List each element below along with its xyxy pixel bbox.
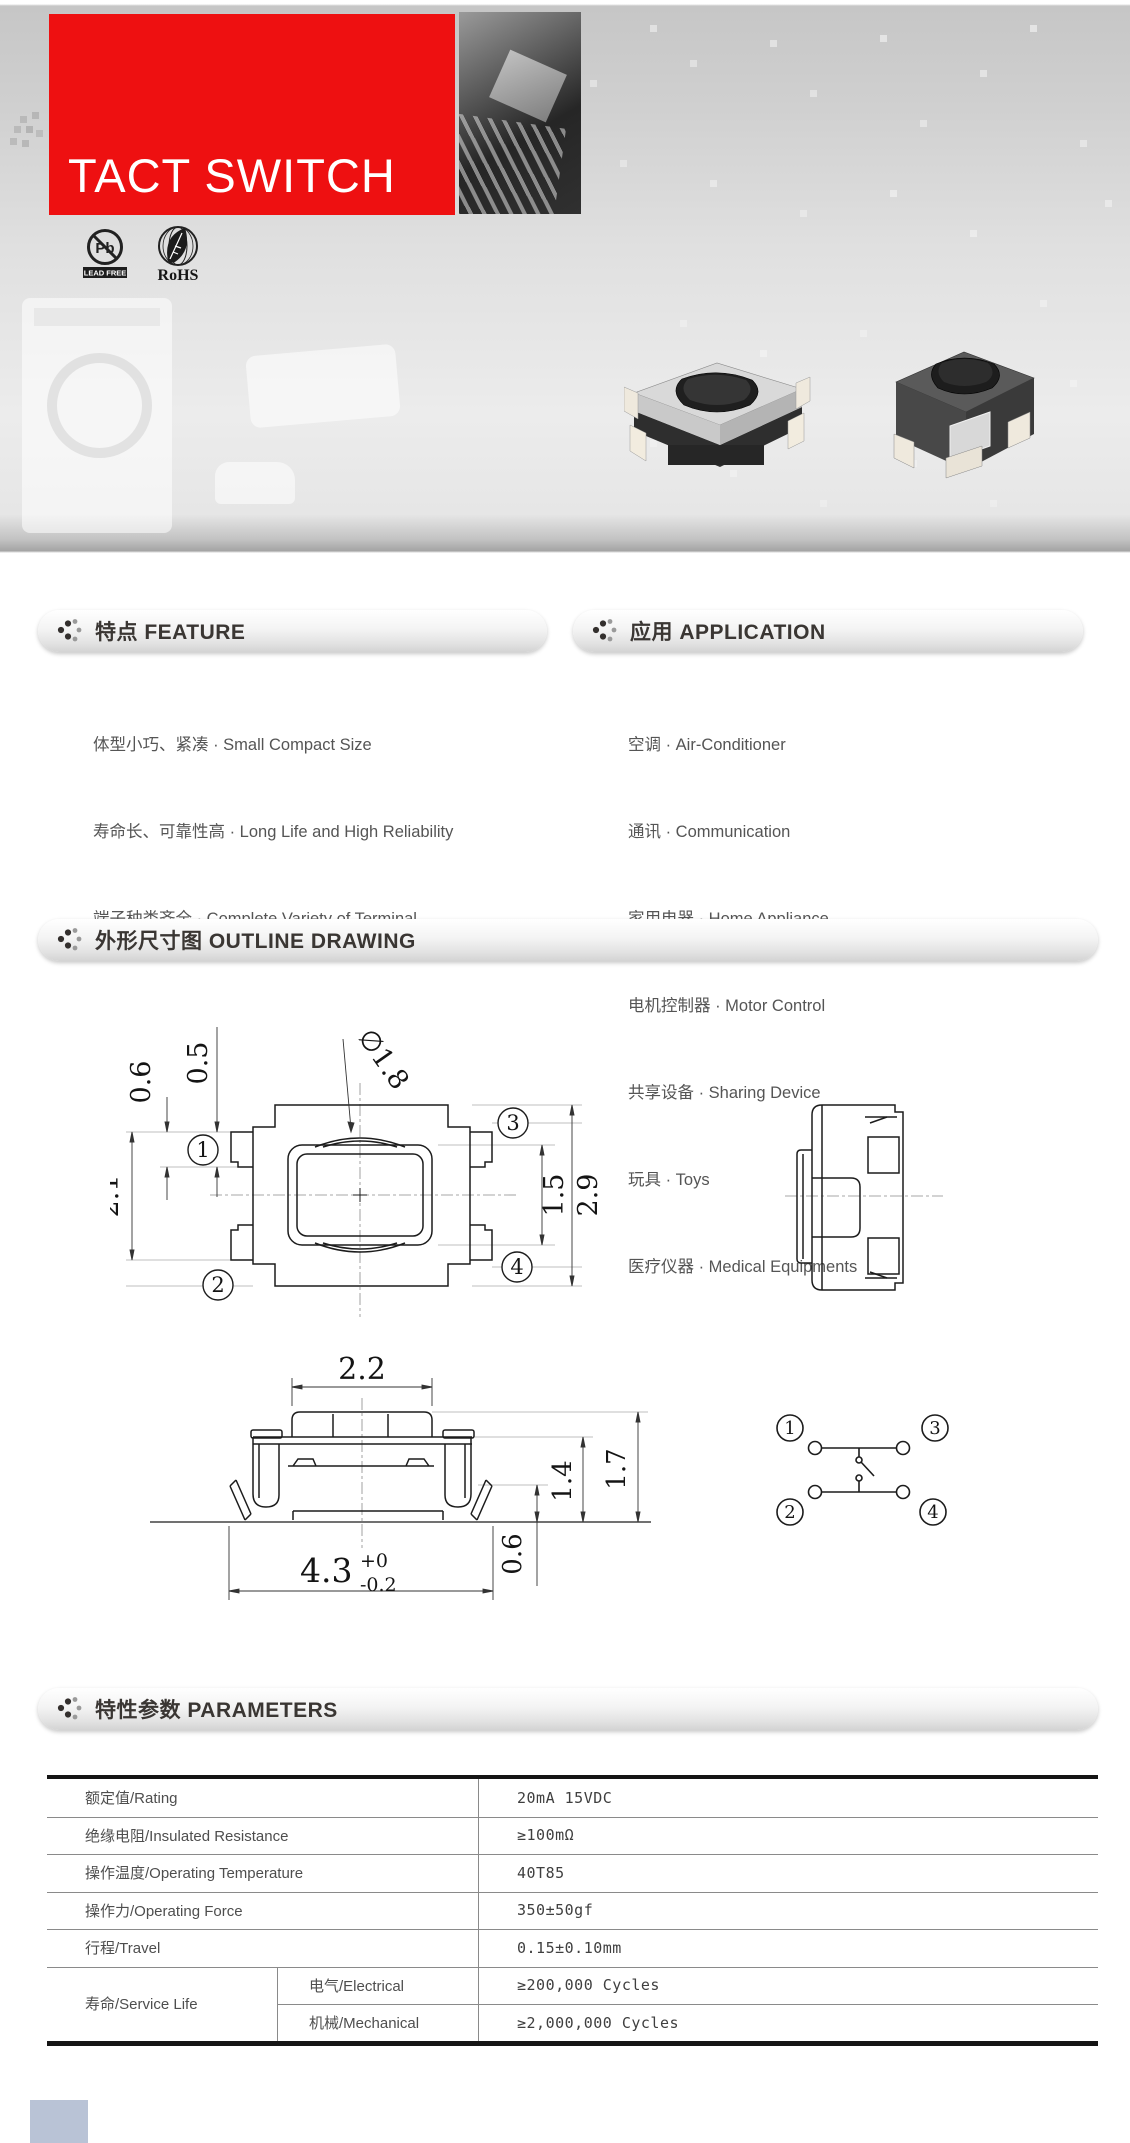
watermark-air-conditioner (245, 344, 401, 429)
rohs-label: RoHS (158, 267, 199, 284)
application-item: 电机控制器 · Motor Control (628, 992, 857, 1021)
param-label: 行程/Travel (85, 1929, 160, 1967)
svg-text:Pb: Pb (95, 240, 114, 257)
application-title: 应用 APPLICATION (630, 616, 826, 646)
param-label: 绝缘电阻/Insulated Resistance (85, 1817, 288, 1855)
param-label: 操作力/Operating Force (85, 1892, 243, 1930)
dim-total-width: 4.3 (300, 1551, 352, 1590)
param-value: 350±50gf (517, 1892, 593, 1930)
watermark-washing-machine (22, 298, 172, 533)
application-header: 应用 APPLICATION (573, 610, 1083, 652)
schematic-pin-2: 2 (784, 1502, 795, 1523)
title-banner: TACT SWITCH (49, 14, 455, 215)
product-photo-right (888, 330, 1041, 489)
hero-section: TACT SWITCH Pb LEAD FREE RoHS (0, 0, 1130, 553)
service-life-sub-value: ≥2,000,000 Cycles (517, 2004, 679, 2042)
schematic-pin-3: 3 (929, 1418, 940, 1439)
dim-button-dia: ∅1.8 (351, 1023, 415, 1095)
page-title: TACT SWITCH (68, 152, 396, 199)
rohs-icon: RoHS (158, 227, 199, 284)
lead-free-icon: Pb LEAD FREE (83, 231, 127, 279)
feature-item: 寿命长、可靠性高 · Long Life and High Reliabilit… (93, 818, 453, 847)
service-life-sub-value: ≥200,000 Cycles (517, 1967, 660, 2005)
product-photo-left (624, 349, 811, 487)
application-item: 通讯 · Communication (628, 818, 857, 847)
mosaic-pattern (560, 0, 567, 7)
param-value: 0.15±0.10mm (517, 1929, 622, 1967)
outline-header: 外形尺寸图 OUTLINE DRAWING (38, 919, 1098, 961)
dim-total-height: 1.7 (602, 1448, 632, 1489)
drawing-side-view (745, 1070, 975, 1310)
dots-icon (591, 619, 617, 643)
dim-body-height: 1.4 (548, 1460, 578, 1501)
drawing-front-view: 2.2 1.4 1.7 0.6 4.3 +0 -0.2 (148, 1348, 708, 1648)
service-life-label: 寿命/Service Life (85, 1967, 198, 2042)
watermark-car (215, 462, 295, 504)
param-value: ≥100mΩ (517, 1817, 574, 1855)
dots-icon (56, 1697, 82, 1721)
drawing-top-view: 0.5 0.6 ∅1.8 2.1 1.5 2.9 1 2 3 4 (110, 985, 610, 1330)
outline-title: 外形尺寸图 OUTLINE DRAWING (95, 925, 416, 955)
pin-callout-2: 2 (211, 1273, 224, 1297)
dim-terminal-height: 0.6 (498, 1533, 528, 1574)
lead-free-label: LEAD FREE (84, 269, 127, 278)
feature-header: 特点 FEATURE (38, 610, 547, 652)
pin-callout-4: 4 (510, 1255, 523, 1279)
datasheet-page: TACT SWITCH Pb LEAD FREE RoHS (0, 0, 1130, 2143)
param-label: 额定值/Rating (85, 1779, 178, 1817)
pin-callout-1: 1 (196, 1138, 209, 1162)
parameters-table: 额定值/Rating 20mA 15VDC 绝缘电阻/Insulated Res… (47, 1775, 1098, 2046)
mosaic-pattern-left (8, 112, 15, 119)
dim-button-width: 2.2 (338, 1352, 386, 1387)
parameters-header: 特性参数 PARAMETERS (38, 1688, 1098, 1730)
application-item: 空调 · Air-Conditioner (628, 731, 857, 760)
schematic-pin-1: 1 (784, 1418, 795, 1439)
param-label: 操作温度/Operating Temperature (85, 1854, 303, 1892)
footer-mark (30, 2100, 88, 2143)
dots-icon (56, 928, 82, 952)
dim-pin-offset: 0.5 (183, 1042, 214, 1085)
dim-tolerance-upper: +0 (360, 1550, 388, 1572)
dim-pin-width: 0.6 (126, 1061, 157, 1104)
drawing-circuit-schematic: 1 2 3 4 (755, 1390, 1015, 1570)
dim-button-height: 1.5 (539, 1174, 570, 1217)
param-value: 40T85 (517, 1854, 565, 1892)
dim-tolerance-lower: -0.2 (360, 1574, 397, 1596)
service-life-sub-label: 机械/Mechanical (309, 2004, 419, 2042)
param-value: 20mA 15VDC (517, 1779, 612, 1817)
compliance-badges: Pb LEAD FREE RoHS (72, 218, 212, 288)
feature-title: 特点 FEATURE (95, 616, 245, 646)
dots-icon (56, 619, 82, 643)
feature-item: 体型小巧、紧凑 · Small Compact Size (93, 731, 453, 760)
pin-callout-3: 3 (506, 1111, 519, 1135)
dim-body-height: 2.9 (573, 1174, 604, 1217)
service-life-sub-label: 电气/Electrical (309, 1967, 404, 2005)
dim-left-height: 2.1 (110, 1175, 125, 1218)
parameters-title: 特性参数 PARAMETERS (95, 1694, 338, 1724)
circuit-board-photo (459, 12, 581, 214)
schematic-pin-4: 4 (927, 1502, 938, 1523)
